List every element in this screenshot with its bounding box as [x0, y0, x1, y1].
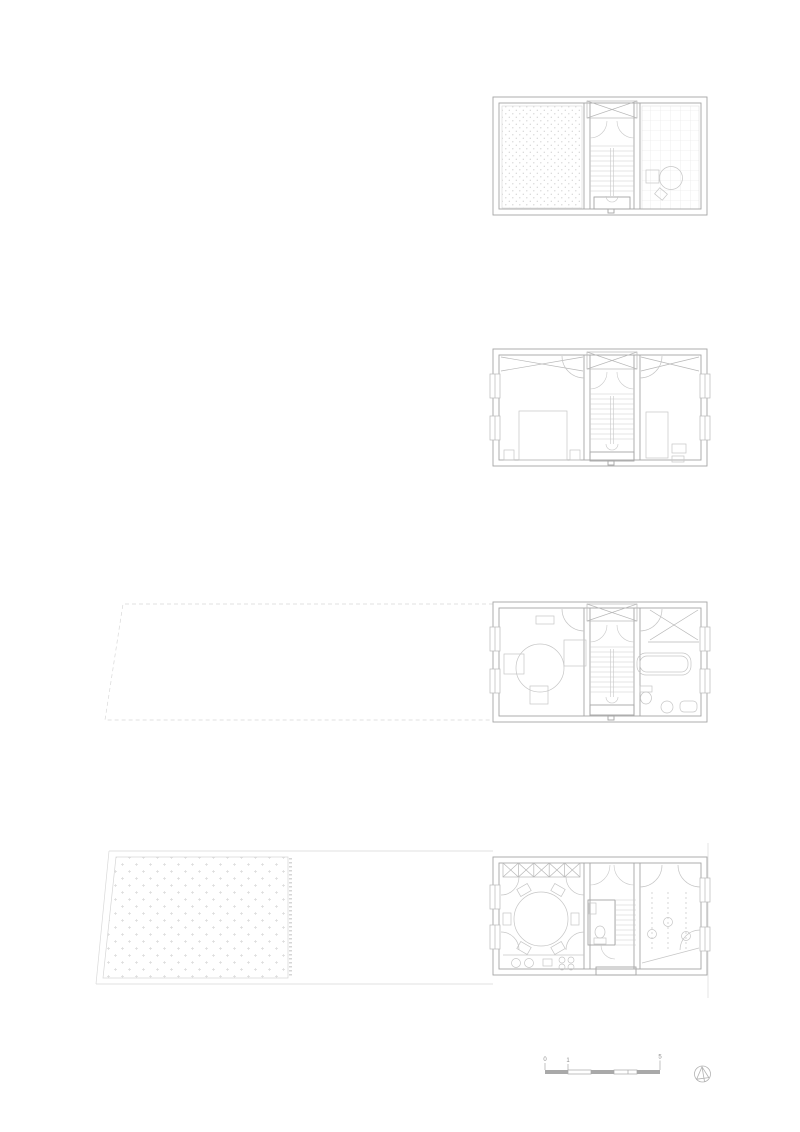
- toilet-bowl: [595, 926, 605, 938]
- nightstand: [570, 450, 580, 460]
- chair: [503, 913, 511, 925]
- door-swing: [640, 865, 662, 887]
- entry-hall-furniture: [640, 865, 700, 963]
- door-swing: [566, 932, 584, 950]
- door-threshold: [608, 716, 614, 720]
- toilet-tank: [594, 938, 606, 944]
- skylight-shaft: [587, 101, 637, 118]
- door-threshold: [596, 967, 636, 975]
- burner: [559, 957, 565, 963]
- door-swing: [640, 609, 662, 631]
- appliance: [543, 959, 552, 966]
- side-table: [672, 444, 686, 453]
- floor-plan-ground-level: [96, 843, 710, 998]
- scale-label-0: 0: [543, 1057, 547, 1063]
- walls: [493, 857, 707, 975]
- door-swing: [566, 877, 584, 895]
- north-arrow-icon: [695, 1066, 711, 1082]
- window: [700, 374, 710, 398]
- scale-bar: 0 1 5: [543, 1055, 662, 1075]
- window: [700, 927, 710, 951]
- door-swing: [501, 877, 519, 895]
- door-swing: [590, 865, 610, 885]
- bathroom-fixtures: [637, 609, 697, 713]
- dining-table: [514, 892, 568, 946]
- roof-terrace-dotted-floor: [502, 106, 582, 208]
- window: [490, 885, 500, 909]
- double-bed: [519, 411, 567, 460]
- study-furniture: [504, 609, 586, 704]
- architectural-drawing-sheet: 0 1 5: [0, 0, 800, 1132]
- door-swing: [562, 356, 584, 378]
- fixtures: [490, 604, 710, 693]
- door-swing: [601, 945, 615, 959]
- stair-landing: [594, 197, 630, 209]
- staircase: [590, 372, 634, 450]
- staircase: [590, 121, 634, 202]
- garden-terrace: [103, 857, 291, 978]
- tiled-roof-room-floor: [642, 106, 699, 209]
- shelf: [536, 616, 554, 624]
- window: [490, 416, 500, 440]
- stair-landing: [590, 705, 634, 715]
- scale-label-1: 1: [566, 1058, 570, 1064]
- washbasin: [680, 701, 697, 712]
- window: [490, 627, 500, 651]
- window: [700, 627, 710, 651]
- nightstand: [504, 450, 514, 460]
- stool: [530, 686, 548, 704]
- bathtub-inner: [640, 656, 688, 672]
- toilet-tank: [640, 686, 652, 692]
- washbasin: [661, 701, 673, 713]
- burner: [568, 957, 574, 963]
- low-cabinet: [672, 456, 684, 462]
- ramp-edge: [642, 948, 699, 963]
- wc-fixtures: [589, 903, 606, 944]
- kitchen-sink: [525, 959, 534, 968]
- window: [700, 416, 710, 440]
- stool: [504, 654, 524, 674]
- kitchen-dining-furniture: [501, 877, 584, 970]
- door-swing: [501, 932, 519, 950]
- scale-bar-labels: 0 1 5: [543, 1055, 662, 1065]
- window: [700, 669, 710, 693]
- site-outline-dashed: [105, 604, 493, 720]
- floor-plan-study-level: [105, 602, 710, 722]
- floor-plan-roof-level: [493, 97, 707, 215]
- door-swing: [562, 609, 584, 631]
- scale-bar-filled-segments: [545, 1070, 660, 1074]
- floor-plan-bedroom-level: [490, 349, 710, 466]
- floor-plans-svg: 0 1 5: [0, 0, 800, 1132]
- toilet-bowl: [641, 692, 652, 704]
- window: [700, 878, 710, 902]
- stool: [564, 640, 586, 666]
- door-threshold: [608, 209, 614, 213]
- window: [490, 925, 500, 949]
- single-bed: [646, 412, 668, 458]
- door-swing: [614, 865, 634, 885]
- door-threshold: [608, 461, 614, 465]
- work-table: [516, 644, 564, 692]
- staircase: [590, 625, 634, 703]
- window: [490, 374, 500, 398]
- door-swing: [678, 865, 700, 887]
- kitchen-sink: [512, 959, 521, 968]
- scale-label-5: 5: [658, 1055, 662, 1061]
- ceiling-marks: [490, 352, 710, 440]
- window: [490, 669, 500, 693]
- chair: [571, 913, 579, 925]
